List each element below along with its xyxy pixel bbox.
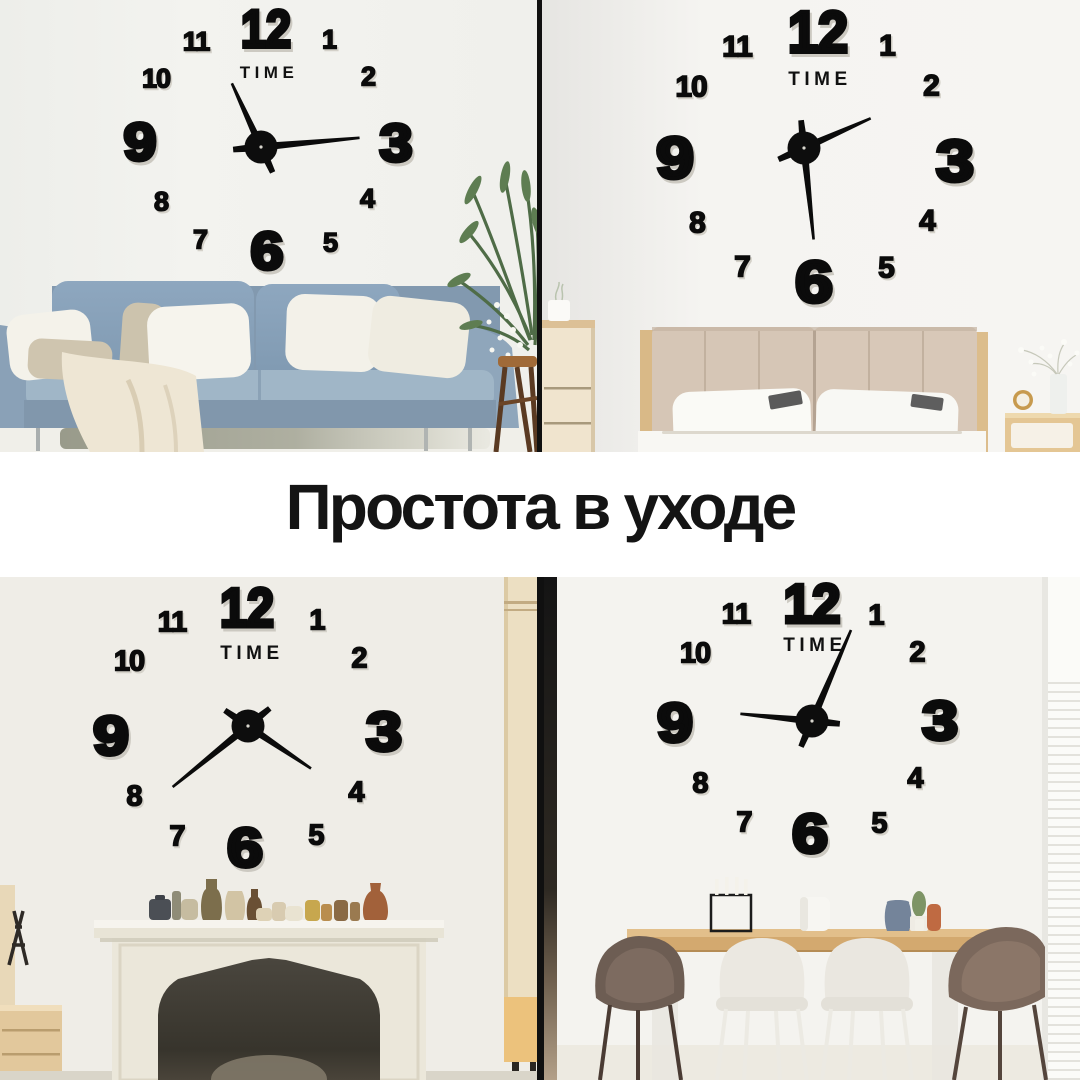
svg-text:5: 5	[308, 819, 324, 851]
svg-text:9: 9	[93, 705, 129, 767]
svg-text:7: 7	[193, 225, 207, 255]
svg-text:3: 3	[936, 129, 974, 194]
svg-text:10: 10	[142, 64, 170, 94]
svg-text:8: 8	[126, 780, 142, 812]
svg-text:1: 1	[879, 30, 895, 63]
svg-text:TIME: TIME	[220, 643, 283, 664]
svg-text:10: 10	[680, 637, 710, 669]
svg-text:1: 1	[868, 599, 884, 631]
svg-text:11: 11	[158, 606, 188, 638]
svg-text:4: 4	[919, 205, 936, 238]
svg-text:2: 2	[351, 642, 366, 674]
svg-text:9: 9	[124, 113, 157, 172]
svg-text:10: 10	[675, 71, 707, 104]
svg-text:4: 4	[907, 762, 923, 794]
svg-text:5: 5	[878, 252, 894, 285]
svg-text:12: 12	[220, 577, 274, 639]
svg-text:7: 7	[734, 251, 750, 284]
svg-text:1: 1	[322, 25, 337, 55]
svg-text:8: 8	[689, 207, 705, 240]
svg-text:7: 7	[736, 806, 751, 838]
svg-text:11: 11	[183, 27, 211, 57]
svg-text:4: 4	[360, 184, 375, 214]
svg-text:12: 12	[241, 0, 291, 59]
svg-text:10: 10	[114, 645, 144, 677]
svg-text:TIME: TIME	[788, 69, 851, 90]
svg-text:2: 2	[361, 62, 375, 92]
svg-text:8: 8	[154, 187, 169, 217]
svg-text:1: 1	[309, 604, 325, 636]
svg-text:7: 7	[169, 820, 184, 852]
svg-text:8: 8	[692, 767, 708, 799]
svg-text:TIME: TIME	[783, 635, 846, 656]
svg-text:6: 6	[792, 803, 828, 865]
svg-text:6: 6	[227, 817, 263, 879]
svg-text:3: 3	[922, 690, 958, 752]
svg-text:TIME: TIME	[240, 63, 299, 82]
svg-text:6: 6	[795, 250, 833, 315]
svg-text:3: 3	[380, 114, 413, 173]
svg-text:11: 11	[722, 31, 752, 64]
svg-text:5: 5	[871, 807, 887, 839]
svg-text:2: 2	[923, 70, 939, 103]
svg-text:4: 4	[348, 776, 364, 808]
svg-text:6: 6	[251, 222, 284, 281]
svg-text:9: 9	[656, 126, 694, 191]
svg-text:11: 11	[722, 598, 752, 630]
svg-text:3: 3	[366, 701, 402, 763]
svg-text:2: 2	[909, 636, 924, 668]
svg-text:9: 9	[657, 692, 693, 754]
svg-text:12: 12	[784, 577, 841, 635]
svg-text:5: 5	[323, 228, 338, 258]
svg-text:12: 12	[788, 0, 848, 65]
